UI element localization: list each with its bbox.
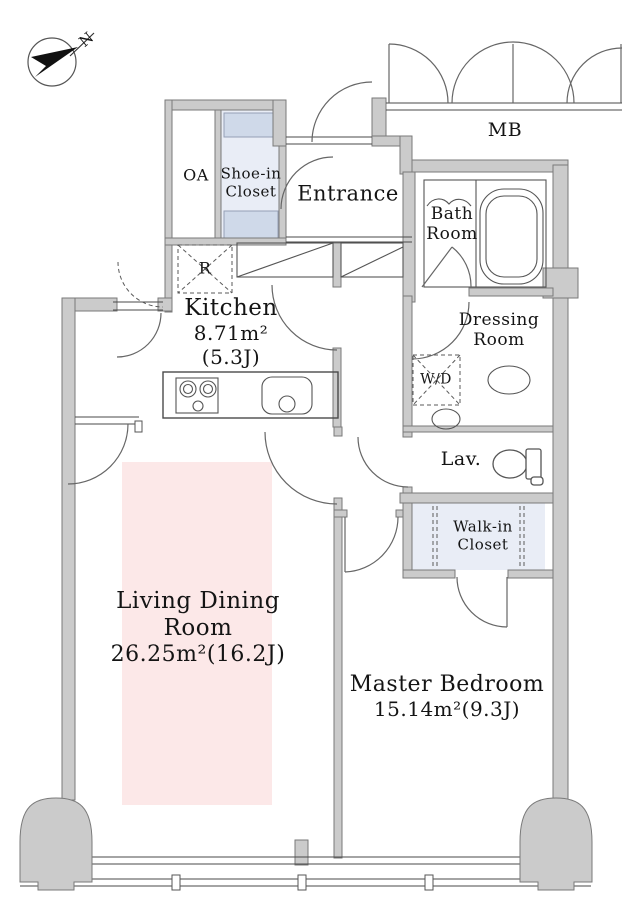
bath-room-label: Bath Room xyxy=(426,204,477,244)
shoe-closet-shelf xyxy=(224,113,278,137)
door-panel xyxy=(422,247,452,287)
railing-post xyxy=(172,875,180,890)
refrigerator-label: R xyxy=(199,260,212,279)
sink-icon xyxy=(262,377,312,414)
washer-dryer-label: W/D xyxy=(420,372,452,389)
shoe-in-closet-label: Shoe-in Closet xyxy=(221,165,282,200)
walk-in-closet-label: Walk-in Closet xyxy=(453,518,513,553)
kitchen-door-arc xyxy=(272,285,337,350)
shoe-closet-shelf xyxy=(224,211,278,238)
living-dining-label: Living Dining Room 26.25m²(16.2J) xyxy=(111,588,286,668)
bedroom-door-arc xyxy=(345,517,398,572)
railing-post xyxy=(425,875,433,890)
closet-door-arc xyxy=(457,577,507,627)
floor-plan-graphics xyxy=(0,0,626,922)
door-arc-dashed xyxy=(118,262,163,307)
dressing-room-label: Dressing Room xyxy=(459,310,540,350)
door-arc xyxy=(567,48,622,103)
door-arc xyxy=(389,44,448,103)
open-air-label: OA xyxy=(183,167,209,186)
kitchen-label: Kitchen 8.71m² (5.3J) xyxy=(184,295,277,369)
floor-plan: N OA Shoe-in Closet Entrance MB Bath Roo… xyxy=(0,0,626,922)
stove-icon xyxy=(176,378,218,413)
bathtub-icon xyxy=(480,189,543,284)
overhead-cabinet xyxy=(237,243,403,277)
master-bedroom-label: Master Bedroom 15.14m²(9.3J) xyxy=(350,672,544,722)
toilet-icon xyxy=(493,449,543,485)
thresholds-and-steps xyxy=(75,44,622,432)
meter-box-label: MB xyxy=(488,119,522,141)
lavatory-label: Lav. xyxy=(441,448,481,470)
railing-post xyxy=(298,875,306,890)
living-door-arc xyxy=(68,424,128,484)
bath-door-arc xyxy=(452,247,471,287)
kitchen-counter xyxy=(163,372,338,418)
entrance-label: Entrance xyxy=(297,182,399,207)
door-arc xyxy=(117,313,161,357)
entrance-door-arc xyxy=(312,82,372,142)
column xyxy=(20,798,92,890)
column xyxy=(520,798,592,890)
living-door-arc xyxy=(265,432,337,504)
lavatory-door-arc xyxy=(358,437,408,487)
